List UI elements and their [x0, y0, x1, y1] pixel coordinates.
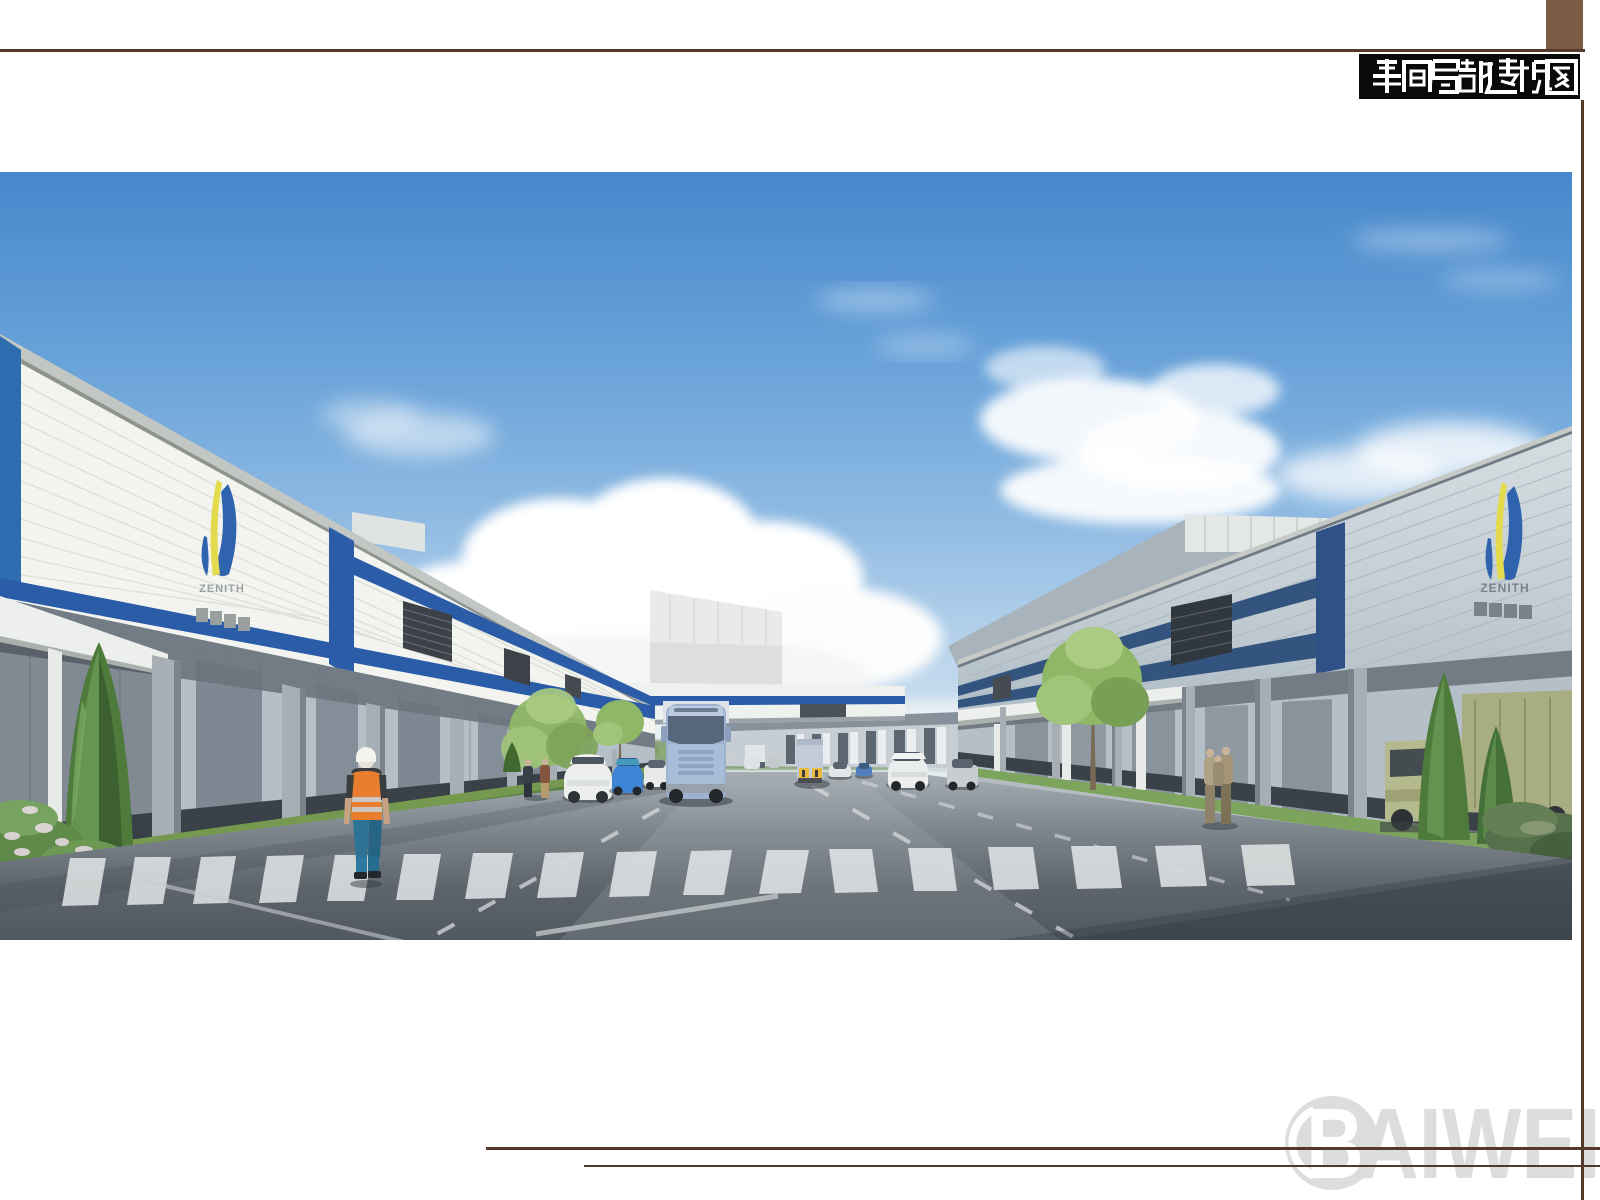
svg-text:B: B — [1306, 1089, 1364, 1200]
svg-text:AIWEI: AIWEI — [1358, 1087, 1600, 1200]
svg-text:ZENITH: ZENITH — [1480, 581, 1529, 595]
svg-text:ZENITH: ZENITH — [199, 583, 245, 595]
